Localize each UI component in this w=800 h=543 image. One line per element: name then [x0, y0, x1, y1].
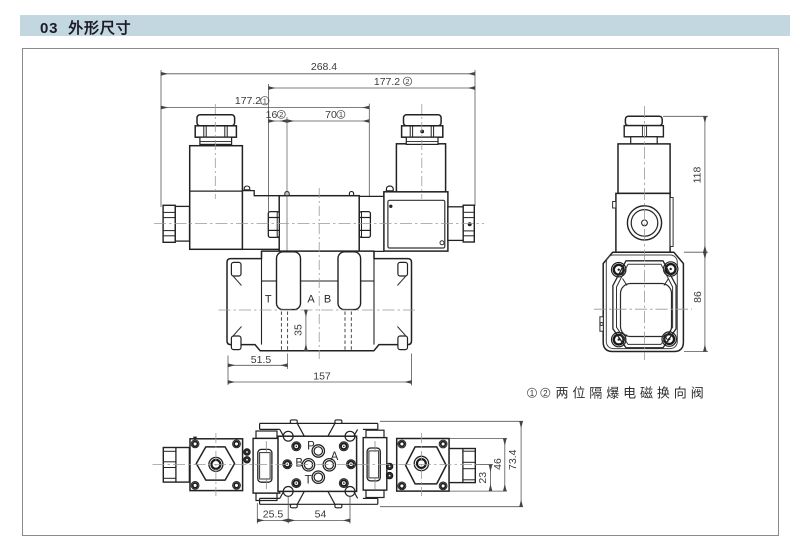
svg-text:1: 1: [263, 97, 267, 106]
svg-text:118: 118: [692, 166, 704, 183]
svg-text:70: 70: [325, 109, 337, 121]
svg-text:177.2: 177.2: [235, 95, 261, 107]
svg-text:T: T: [265, 294, 272, 306]
svg-text:B: B: [324, 294, 331, 306]
svg-text:16: 16: [266, 109, 278, 121]
svg-text:157: 157: [313, 370, 331, 382]
svg-text:25.5: 25.5: [263, 509, 284, 521]
svg-text:A: A: [331, 451, 339, 463]
svg-text:2: 2: [405, 77, 409, 86]
svg-text:B: B: [295, 458, 303, 470]
svg-text:54: 54: [315, 509, 327, 521]
svg-text:P: P: [307, 440, 315, 452]
svg-text:46: 46: [492, 458, 504, 470]
svg-text:T: T: [305, 474, 312, 486]
svg-text:51.5: 51.5: [251, 354, 272, 366]
svg-text:1: 1: [339, 110, 343, 119]
svg-text:两位隔爆电磁换向阀: 两位隔爆电磁换向阀: [556, 386, 708, 401]
svg-text:23: 23: [477, 472, 489, 484]
svg-text:35: 35: [293, 324, 305, 336]
svg-text:177.2: 177.2: [374, 76, 400, 88]
svg-text:268.4: 268.4: [311, 61, 337, 73]
svg-text:86: 86: [692, 291, 704, 303]
svg-text:1: 1: [530, 389, 535, 398]
svg-text:73.4: 73.4: [507, 449, 519, 470]
svg-text:2: 2: [279, 110, 283, 119]
svg-text:A: A: [307, 294, 315, 306]
svg-text:2: 2: [543, 389, 548, 398]
